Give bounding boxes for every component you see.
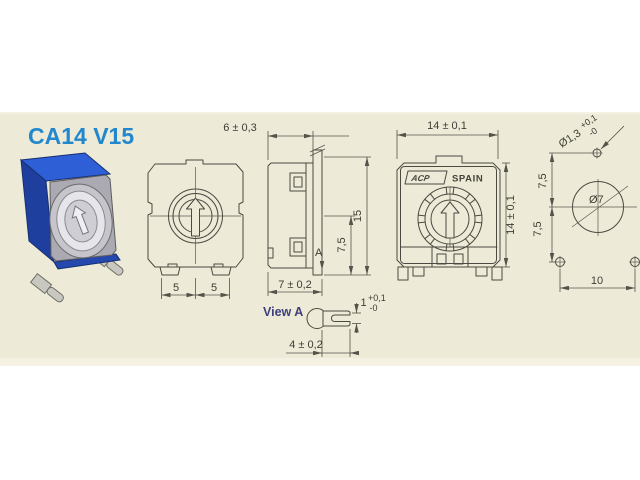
origin-marking: SPAIN <box>452 174 483 185</box>
dim-pin-pitch-left: 5 <box>173 282 179 294</box>
dim-vertical-offset-upper: 7,5 <box>537 173 549 188</box>
panel-bottom-edge <box>0 358 640 366</box>
dim-side-total-height: 15 <box>352 210 364 222</box>
dim-side-half-height: 7,5 <box>336 237 348 252</box>
dim-vertical-offset-lower: 7,5 <box>532 221 544 236</box>
dim-slot-tol-plus: +0,1 <box>368 293 386 303</box>
dim-side-body-width: 6 ± 0,3 <box>223 122 257 134</box>
technical-drawing-svg: CA14 V15 <box>0 0 640 480</box>
dim-pin-pitch-right: 5 <box>211 282 217 294</box>
dim-slot-tol-minus: -0 <box>370 303 378 313</box>
view-a-label: View A <box>263 305 303 319</box>
section-marker-a: A <box>315 247 323 259</box>
dim-back-body-height: 14 ± 0,1 <box>505 195 517 235</box>
panel-top-edge <box>0 112 640 114</box>
dim-hole-pitch: 10 <box>591 275 603 287</box>
brand-logo-text: ACP <box>410 173 431 183</box>
dim-slot-width: 1 <box>361 297 367 309</box>
dim-side-body-depth: 7 ± 0,2 <box>278 279 312 291</box>
dim-lever-width: 4 ± 0,2 <box>289 339 323 351</box>
page-title: CA14 V15 <box>28 123 134 149</box>
product-image-canvas: CA14 V15 <box>0 0 640 480</box>
dim-rotor-diameter: Ø7 <box>589 194 604 206</box>
dim-back-body-width: 14 ± 0,1 <box>427 120 467 132</box>
